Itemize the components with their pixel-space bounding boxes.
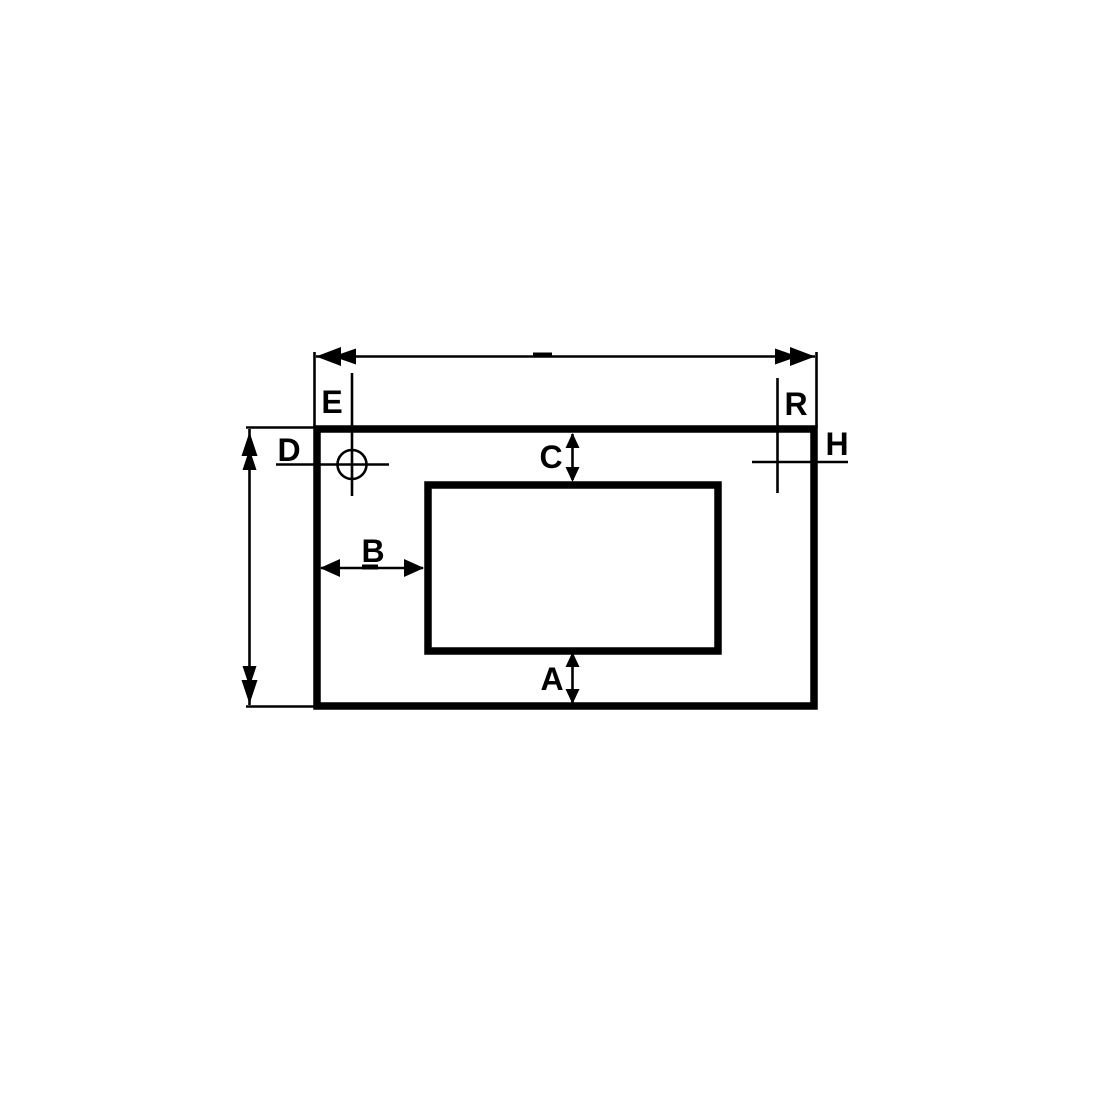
label-d: D [277, 432, 300, 468]
label-e: E [321, 384, 342, 420]
b-right-arrowhead-icon [404, 559, 424, 577]
b-left-arrowhead-icon [320, 559, 340, 577]
c-up-arrowhead-icon [566, 433, 580, 448]
label-r: R [784, 386, 807, 422]
a-down-arrowhead-icon [566, 689, 580, 704]
inner-cutout-rect [428, 485, 718, 651]
label-c: C [539, 439, 562, 475]
top-width-dimension [315, 347, 817, 428]
c-dimension [566, 433, 580, 482]
label-a: A [540, 661, 563, 697]
a-dimension [566, 652, 580, 704]
c-down-arrowhead-icon [566, 467, 580, 482]
left-height-dimension [242, 428, 317, 707]
label-b: B [361, 533, 384, 569]
drawing-canvas: E R D H C B A [0, 0, 1100, 1100]
label-h: H [825, 426, 848, 462]
